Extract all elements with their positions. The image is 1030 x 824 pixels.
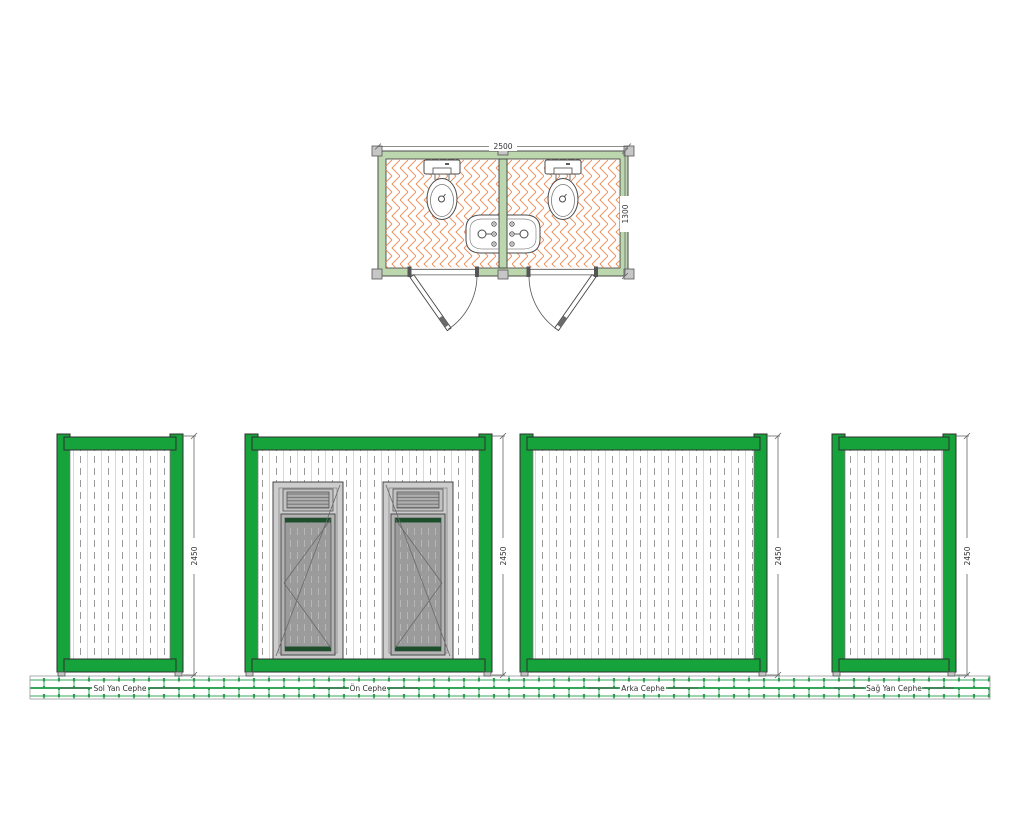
jamb-block <box>408 267 412 278</box>
plan-door-left <box>410 275 477 331</box>
wall-siding <box>845 450 943 659</box>
frame-post-left <box>832 434 845 672</box>
dimension-height: 2450 <box>956 433 972 678</box>
frame-beam-bottom <box>252 659 485 672</box>
frame-post-right <box>943 434 956 672</box>
frame-post-left <box>57 434 70 672</box>
dimension-plan-width: 2500 <box>375 141 631 151</box>
foot <box>58 672 65 676</box>
plan-width-dim-text: 2500 <box>493 142 512 151</box>
elevation-arka-cephe: 2450 Arka Cephe <box>520 433 783 694</box>
elevation-height-dim-text: 2450 <box>499 546 508 565</box>
technical-drawing-canvas: 2500 1300 2450 <box>0 0 1030 824</box>
frame-beam-top <box>839 437 949 450</box>
frame-beam-bottom <box>64 659 176 672</box>
frame-post-right <box>479 434 492 672</box>
plan-door-right <box>529 275 596 331</box>
label-text: Arka Cephe <box>621 684 665 693</box>
door-swing-arc <box>529 276 557 329</box>
sink-right <box>507 215 540 253</box>
elevation-sag-yan-cephe: 2450 Sağ Yan Cephe <box>832 433 972 694</box>
door-right <box>383 482 453 659</box>
elevation-on-cephe: 2450 Ön Cephe <box>245 433 508 694</box>
door-swing-arc <box>448 276 477 329</box>
label-text: Ön Cephe <box>349 684 386 693</box>
frame-post-right <box>754 434 767 672</box>
dimension-height: 2450 <box>767 433 783 678</box>
jamb-block <box>527 267 531 278</box>
dimension-height: 2450 <box>183 433 199 678</box>
frame-post-left <box>520 434 533 672</box>
plan-depth-dim-text: 1300 <box>621 204 630 223</box>
foot <box>759 672 766 676</box>
elevation-height-dim-text: 2450 <box>963 546 972 565</box>
foot <box>948 672 955 676</box>
jamb-block <box>594 267 598 278</box>
sink-left <box>466 215 499 253</box>
jamb-block <box>475 267 479 278</box>
floor-plan: 2500 1300 <box>372 141 634 331</box>
frame-beam-top <box>252 437 485 450</box>
wall-siding <box>533 450 754 659</box>
dimension-height: 2450 <box>492 433 508 678</box>
label-text: Sol Yan Cephe <box>93 684 146 693</box>
foot <box>246 672 253 676</box>
foot <box>833 672 840 676</box>
elevation-height-dim-text: 2450 <box>190 546 199 565</box>
foot <box>521 672 528 676</box>
door-left <box>273 482 343 659</box>
frame-post-right <box>170 434 183 672</box>
elevation-height-dim-text: 2450 <box>774 546 783 565</box>
frame-beam-top <box>64 437 176 450</box>
ground-strip <box>30 676 990 699</box>
foot <box>484 672 491 676</box>
toilet-left <box>424 160 460 220</box>
frame-beam-top <box>527 437 760 450</box>
brick-band <box>30 676 990 699</box>
opening-left <box>410 267 477 277</box>
frame-beam-bottom <box>527 659 760 672</box>
opening-right <box>529 267 596 277</box>
frame-beam-bottom <box>839 659 949 672</box>
foot <box>175 672 182 676</box>
partition-wall <box>499 159 507 268</box>
wall-siding <box>70 450 170 659</box>
toilet-right <box>545 160 581 220</box>
frame-post-left <box>245 434 258 672</box>
label-text: Sağ Yan Cephe <box>866 684 922 693</box>
elevation-sol-yan-cephe: 2450 Sol Yan Cephe <box>57 433 199 694</box>
